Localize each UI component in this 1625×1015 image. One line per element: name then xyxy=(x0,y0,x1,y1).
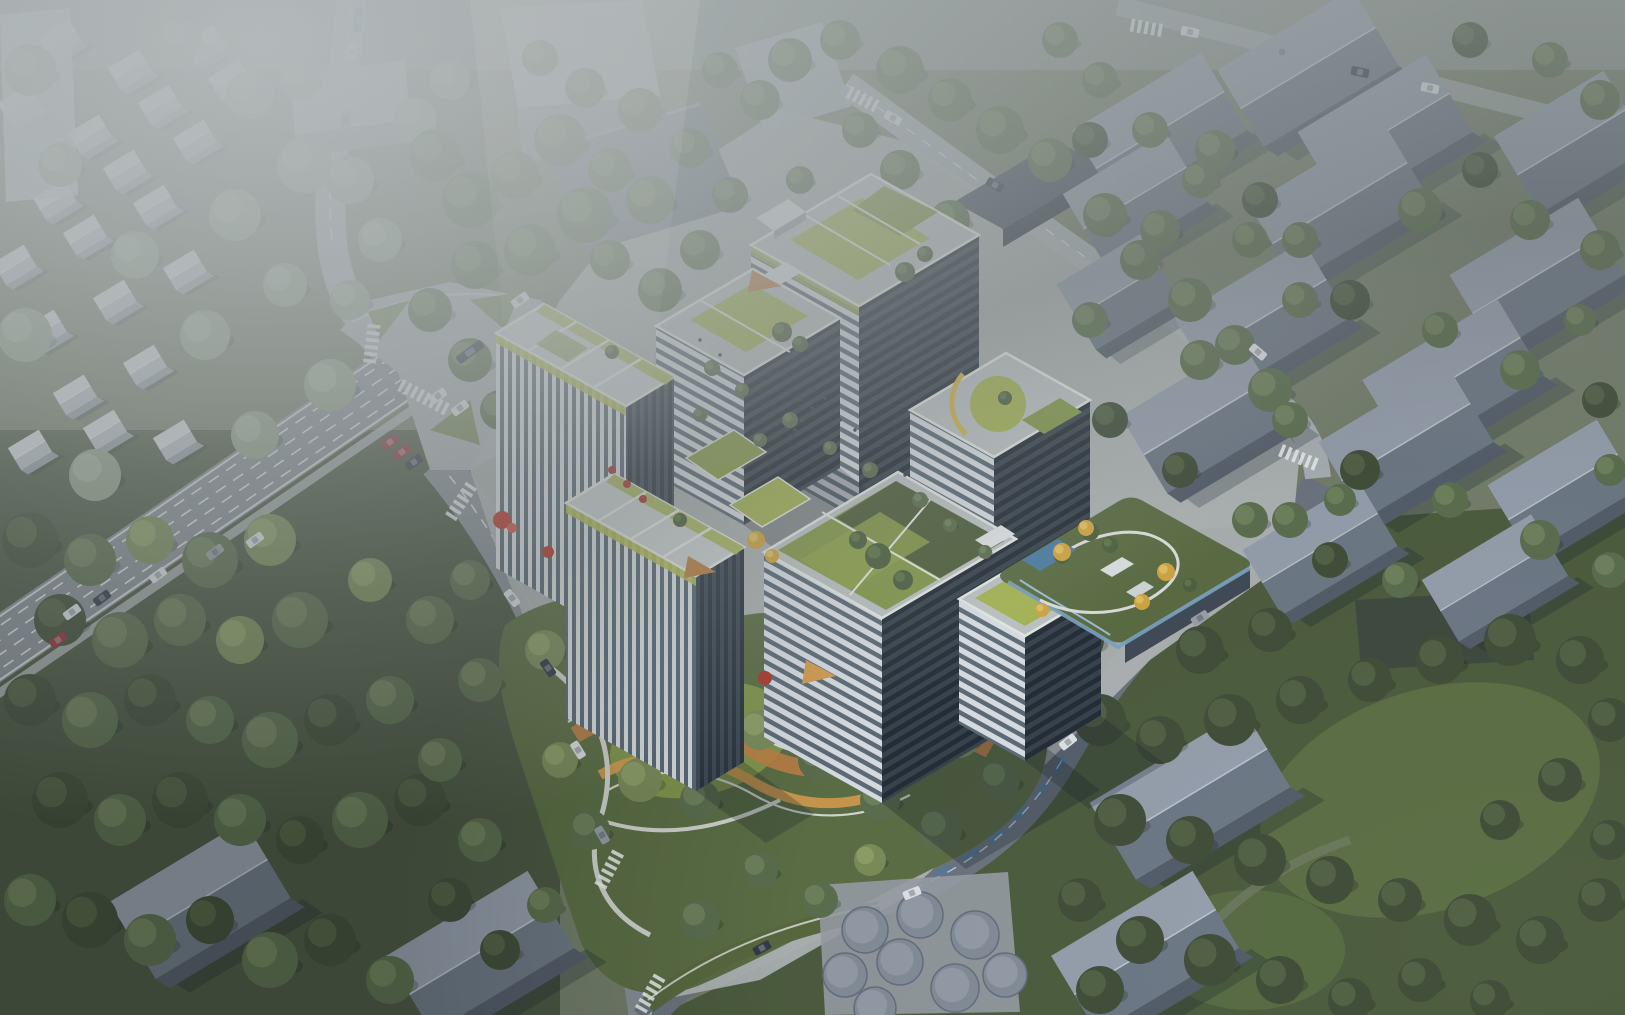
vignette xyxy=(0,0,1625,1015)
atmosphere xyxy=(0,0,1625,1015)
aerial-render-canvas xyxy=(0,0,1625,1015)
scene-svg xyxy=(0,0,1625,1015)
